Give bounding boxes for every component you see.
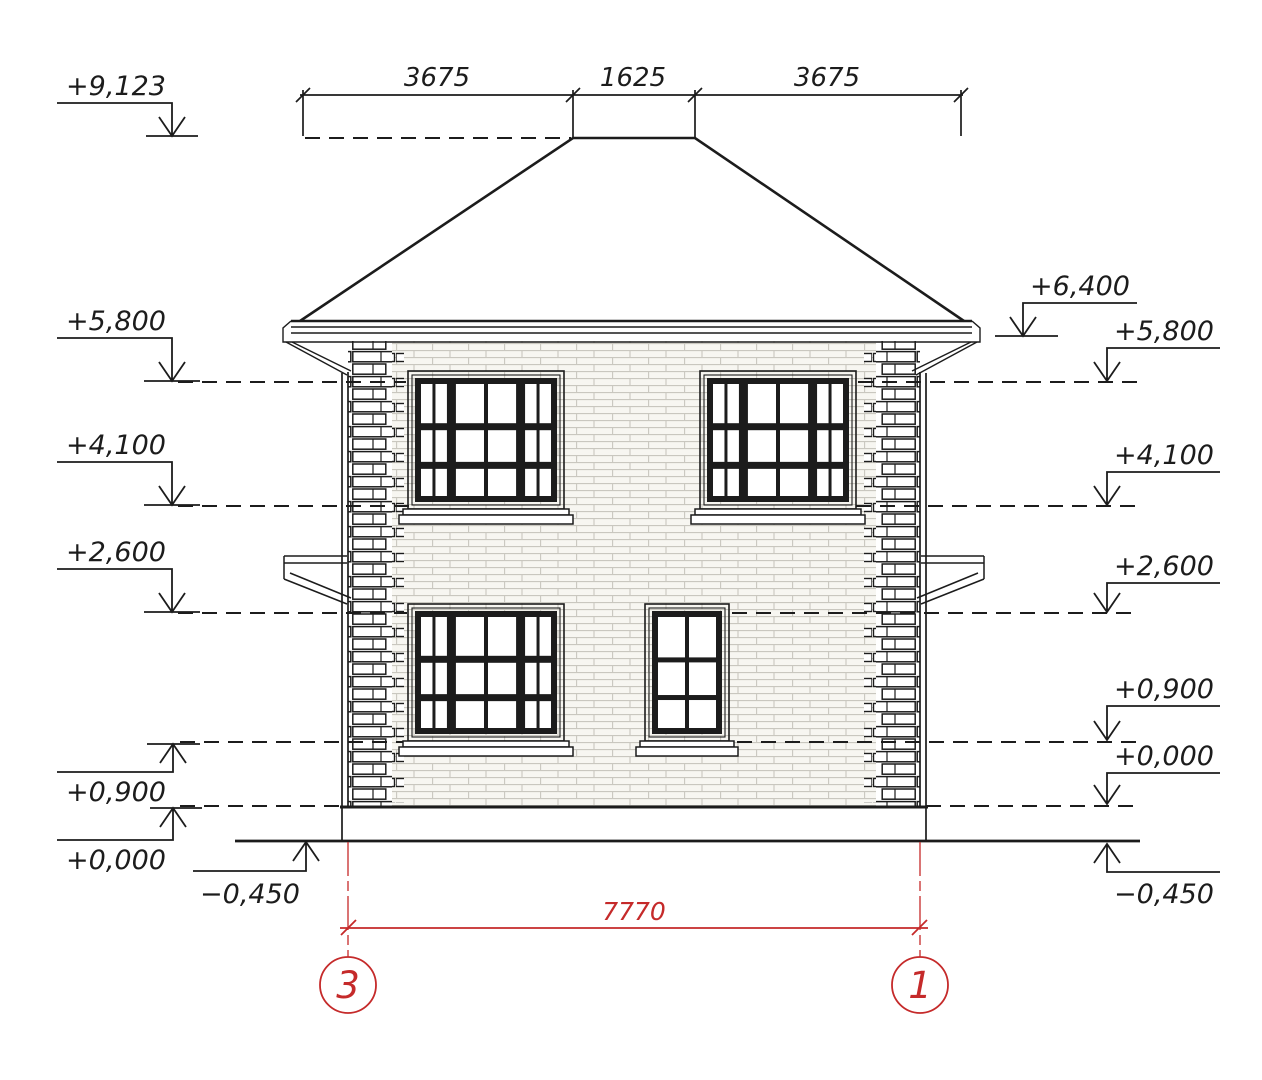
- window-pane: [456, 430, 484, 462]
- window-pane: [689, 617, 716, 657]
- elevation-mark-label: +0,000: [1114, 741, 1214, 772]
- elevation-mark: −0,450: [193, 842, 319, 910]
- elevation-mark-label: +5,800: [66, 306, 166, 337]
- elevation-mark-label: +4,100: [66, 430, 166, 461]
- window-pane: [525, 617, 536, 656]
- window-pane: [421, 617, 432, 656]
- soffit-right: [912, 342, 977, 375]
- window-pane: [748, 430, 776, 462]
- window-pane: [525, 430, 536, 462]
- elevation-mark: +0,900: [57, 744, 200, 808]
- elevation-mark-symbol: [1094, 583, 1220, 612]
- elevation-mark-symbol: [1094, 706, 1220, 740]
- window-pane: [689, 700, 716, 728]
- window-pane: [421, 384, 432, 423]
- window-pane: [713, 430, 724, 462]
- window-pane: [525, 701, 536, 728]
- window-pane: [540, 663, 551, 694]
- window-pane: [658, 617, 685, 657]
- elevation-mark-label: +6,400: [1030, 271, 1130, 302]
- elevation-mark: +0,000: [57, 808, 202, 876]
- window-pane: [456, 617, 484, 656]
- elevation-mark: +2,600: [57, 537, 200, 612]
- window-pane: [748, 384, 776, 423]
- window-pane: [817, 430, 828, 462]
- elevation-mark-symbol: [57, 569, 200, 612]
- canopy-right: [917, 556, 984, 604]
- window-pane: [727, 430, 738, 462]
- window-pane: [456, 701, 484, 728]
- window-pane: [421, 469, 432, 496]
- elevation-mark: +0,900: [1094, 674, 1220, 740]
- axis-label-right: 1: [908, 964, 932, 1007]
- window-pane: [832, 430, 843, 462]
- quoin-right: [864, 341, 920, 807]
- elevation-mark: +4,100: [57, 430, 200, 505]
- window-pane: [456, 663, 484, 694]
- quoin-tabs: [392, 348, 404, 803]
- window-pane: [488, 384, 516, 423]
- bottom-dimension-value: 7770: [602, 897, 666, 926]
- window-pane: [540, 701, 551, 728]
- elevation-mark-label: +5,800: [1114, 316, 1214, 347]
- window-pane: [488, 469, 516, 496]
- elevation-mark-label: −0,450: [1114, 879, 1214, 910]
- window: [399, 371, 573, 524]
- window-pane: [488, 430, 516, 462]
- window-pane: [713, 469, 724, 496]
- window-pane: [525, 663, 536, 694]
- window-pane: [780, 469, 808, 496]
- window-pane: [540, 617, 551, 656]
- elevation-mark: +4,100: [1094, 440, 1220, 505]
- window-pane: [817, 384, 828, 423]
- window-pane: [658, 700, 685, 728]
- elevation-mark: +9,123: [57, 71, 198, 136]
- window-pane: [817, 469, 828, 496]
- window-pane: [525, 469, 536, 496]
- window: [691, 371, 865, 524]
- elevation-mark-label: +9,123: [66, 71, 166, 102]
- window-pane: [435, 617, 446, 656]
- elevation-mark-label: +2,600: [66, 537, 166, 568]
- elevation-mark-symbol: [1094, 773, 1220, 804]
- quoin-strip: [348, 341, 392, 807]
- window-sill: [691, 515, 865, 524]
- window-pane: [525, 384, 536, 423]
- window-sill: [695, 509, 861, 515]
- window-pane: [435, 701, 446, 728]
- elevation-mark-symbol: [1094, 844, 1220, 872]
- dim-segment-2: 1625: [600, 63, 666, 93]
- window-pane: [421, 430, 432, 462]
- window-pane: [421, 701, 432, 728]
- window-sill: [403, 741, 569, 747]
- elevation-mark-symbol: [57, 462, 200, 505]
- window-pane: [488, 663, 516, 694]
- window-pane: [421, 663, 432, 694]
- axes-and-bottom-dimension: 7770 3 1: [320, 842, 948, 1013]
- window-pane: [540, 430, 551, 462]
- window-pane: [658, 662, 685, 695]
- window-pane: [488, 617, 516, 656]
- window-sill: [640, 741, 734, 747]
- elevation-mark: +0,000: [1094, 741, 1220, 804]
- window-pane: [435, 469, 446, 496]
- elevation-mark-symbol: [57, 338, 200, 381]
- dim-segment-3: 3675: [794, 63, 860, 93]
- elevation-mark-label: −0,450: [200, 879, 300, 910]
- window-pane: [748, 469, 776, 496]
- window-pane: [780, 384, 808, 423]
- window-pane: [435, 663, 446, 694]
- elevation-mark-symbol: [1094, 348, 1220, 381]
- window-pane: [832, 469, 843, 496]
- quoin-strip: [876, 341, 920, 807]
- window-pane: [727, 384, 738, 423]
- elevation-mark-label: +0,900: [66, 777, 166, 808]
- facade-elevation-drawing: 3675 1625 3675 +9,123+5,800+4,100+2,600+…: [0, 0, 1262, 1080]
- top-dimension-line: [296, 88, 968, 138]
- roof-outline: [300, 138, 964, 321]
- elevation-mark-label: +4,100: [1114, 440, 1214, 471]
- axis-label-left: 3: [336, 964, 360, 1007]
- elevation-mark-symbol: [57, 744, 200, 772]
- window-sill: [399, 515, 573, 524]
- elevation-mark-label: +0,000: [66, 845, 166, 876]
- soffit-left: [286, 342, 351, 375]
- house: [235, 138, 1140, 841]
- elevation-mark: −0,450: [1094, 844, 1220, 910]
- elevation-mark: +2,600: [1094, 551, 1220, 612]
- window-pane: [435, 384, 446, 423]
- elevation-mark-symbol: [57, 103, 198, 136]
- window-pane: [456, 384, 484, 423]
- window-sill: [636, 747, 738, 756]
- window-pane: [780, 430, 808, 462]
- eave-fascia: [283, 321, 980, 342]
- window-pane: [540, 469, 551, 496]
- elevation-mark-symbol: [1094, 472, 1220, 505]
- quoin-left: [348, 341, 404, 807]
- window: [399, 604, 573, 756]
- window-pane: [435, 430, 446, 462]
- window-pane: [689, 662, 716, 695]
- quoin-tabs: [864, 348, 876, 803]
- window-pane: [713, 384, 724, 423]
- window-pane: [832, 384, 843, 423]
- window-sill: [399, 747, 573, 756]
- elevation-mark-label: +2,600: [1114, 551, 1214, 582]
- elevation-mark-symbol: [193, 842, 319, 871]
- elevation-mark: +5,800: [1094, 316, 1220, 381]
- window-pane: [456, 469, 484, 496]
- dim-segment-1: 3675: [404, 63, 470, 93]
- canopy-left: [284, 556, 351, 604]
- window-pane: [540, 384, 551, 423]
- window-pane: [488, 701, 516, 728]
- elevation-mark-label: +0,900: [1114, 674, 1214, 705]
- elevation-mark: +5,800: [57, 306, 200, 381]
- elevation-mark-symbol: [57, 808, 202, 840]
- window-pane: [727, 469, 738, 496]
- window-sill: [403, 509, 569, 515]
